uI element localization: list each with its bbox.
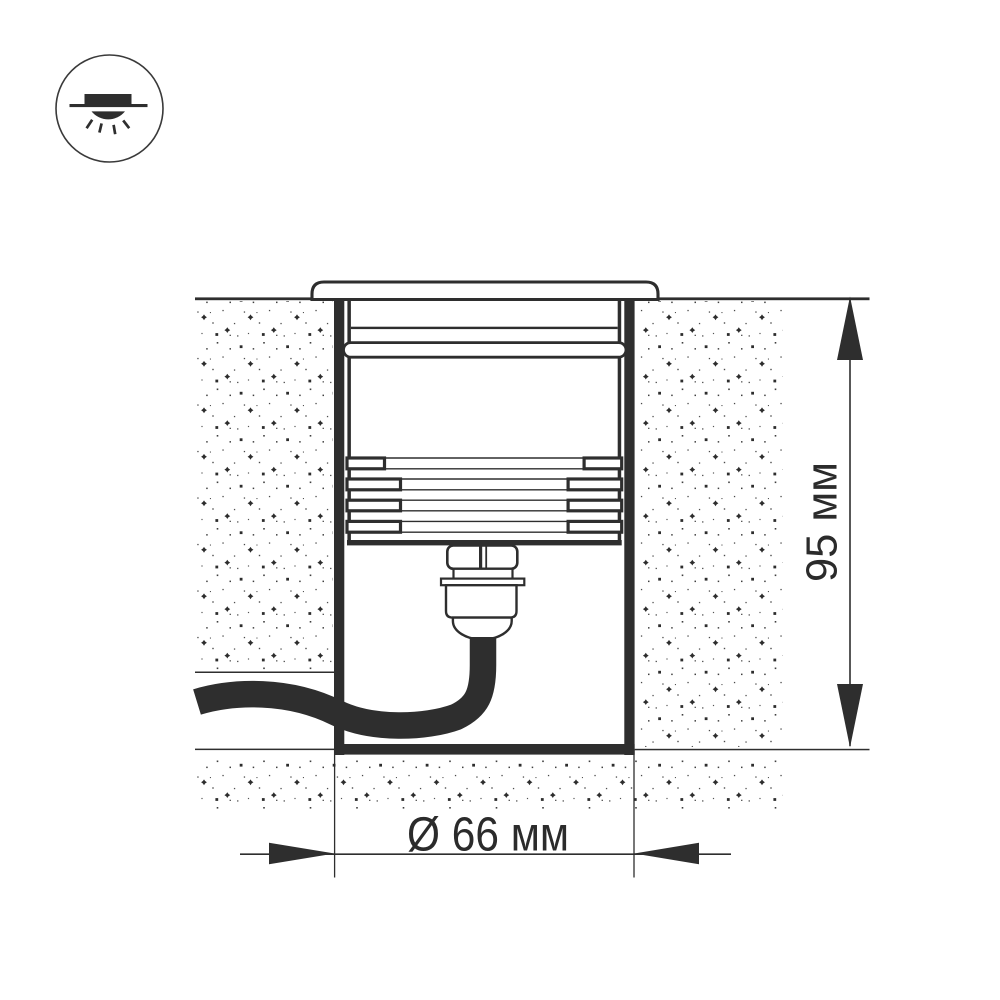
svg-text:Ø 66 мм: Ø 66 мм — [407, 809, 569, 862]
svg-text:95 мм: 95 мм — [798, 462, 847, 582]
